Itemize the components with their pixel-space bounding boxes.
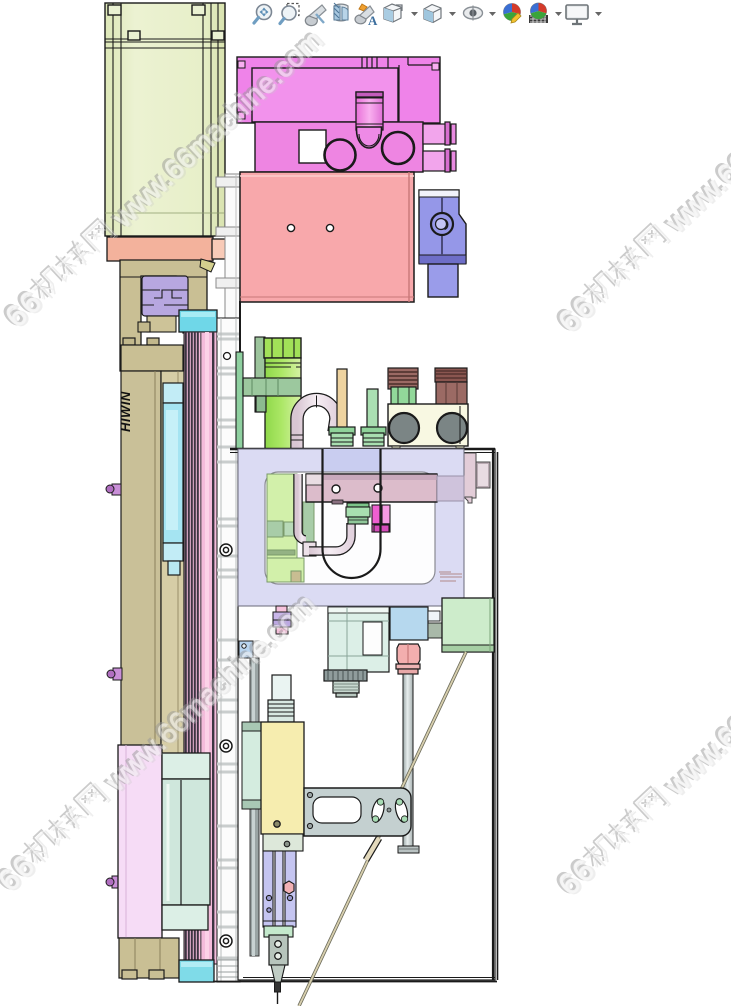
svg-text:HIWIN: HIWIN bbox=[118, 391, 133, 432]
svg-text:A: A bbox=[368, 13, 378, 28]
